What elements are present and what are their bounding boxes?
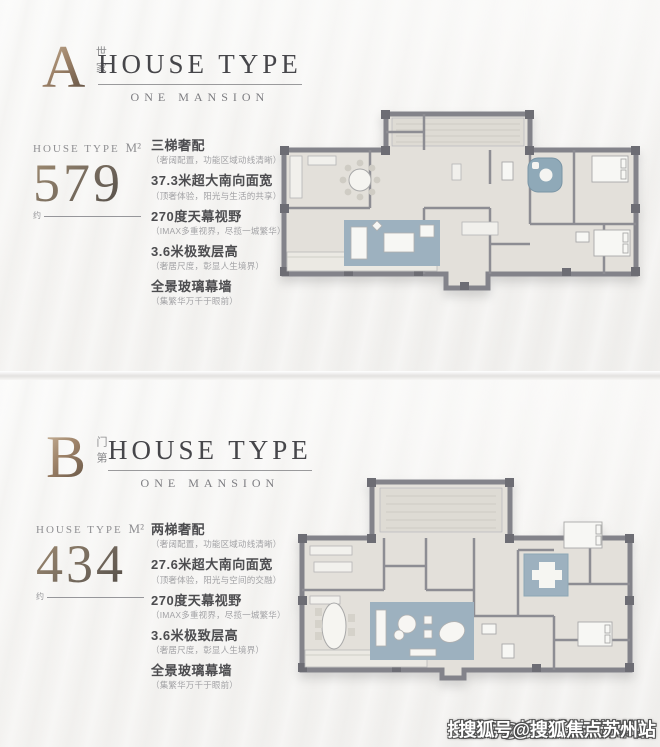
feature-desc: （集繁华万千于眼前）	[151, 296, 286, 307]
feature-item: 3.6米极致层高 （奢居尺度，彰显人生境界）	[151, 244, 286, 272]
area-value: 434	[36, 537, 144, 592]
feature-title: 3.6米极致层高	[151, 244, 286, 260]
heading-b: HOUSE TYPE ONE MANSION	[108, 435, 312, 491]
plan-a-living-rug	[344, 220, 440, 266]
feature-title: 37.3米超大南向面宽	[151, 173, 286, 189]
heading-subtitle: ONE MANSION	[98, 90, 302, 105]
area-unit: M²	[126, 140, 141, 156]
feature-desc: （集繁华万千于眼前）	[151, 680, 286, 691]
heading-title: HOUSE TYPE	[108, 435, 312, 466]
feature-list-b: 两梯奢配 （奢阔配置，功能区域动线清晰） 27.6米超大南向面宽 （顶奢体验，阳…	[151, 522, 286, 698]
feature-desc: （IMAX多重视界，尽揽一城繁华）	[151, 226, 286, 237]
feature-title: 270度天幕视野	[151, 209, 286, 225]
floor-plan-b	[292, 474, 640, 684]
watermark: 搜狐号@搜狐焦点苏州站 搜狐号@搜狐焦点苏州站	[416, 716, 656, 742]
feature-desc: （奢阔配置，功能区域动线清晰）	[151, 539, 286, 550]
feature-list-a: 三梯奢配 （奢阔配置，功能区域动线清晰） 37.3米超大南向面宽 （顶奢体验，阳…	[151, 138, 286, 314]
feature-title: 270度天幕视野	[151, 593, 286, 609]
floor-plan-a	[274, 104, 646, 300]
feature-desc: （奢居尺度，彰显人生境界）	[151, 261, 286, 272]
feature-desc: （奢居尺度，彰显人生境界）	[151, 645, 286, 656]
panel-house-type-b: B 门第 HOUSE TYPE ONE MANSION HOUSE TYPE M…	[0, 380, 660, 747]
area-underline	[47, 597, 144, 598]
feature-title: 27.6米超大南向面宽	[151, 557, 286, 573]
heading-rule	[108, 470, 312, 471]
logo-letter-b: B	[46, 430, 86, 485]
feature-item: 270度天幕视野 （IMAX多重视界，尽揽一城繁华）	[151, 593, 286, 621]
area-block-a: HOUSE TYPE M² 579 约	[33, 140, 141, 220]
heading-a: HOUSE TYPE ONE MANSION	[98, 49, 302, 105]
plan-a-dining-table	[340, 160, 381, 201]
feature-item: 27.6米超大南向面宽 （顶奢体验，阳光与空间的交融）	[151, 557, 286, 585]
area-underline	[44, 216, 141, 217]
area-value: 579	[33, 156, 141, 211]
area-foot: 约	[33, 212, 141, 220]
feature-item: 全景玻璃幕墙 （集繁华万千于眼前）	[151, 279, 286, 307]
watermark-text: 搜狐号@搜狐焦点苏州站	[458, 716, 656, 742]
feature-desc: （顶奢体验，阳光与生活的共享）	[151, 191, 286, 202]
panel-divider	[0, 371, 660, 380]
plan-b-bathroom	[524, 554, 568, 596]
feature-title: 两梯奢配	[151, 522, 286, 538]
feature-item: 3.6米极致层高 （奢居尺度，彰显人生境界）	[151, 628, 286, 656]
logo-letter-b-chinese: 门第	[93, 436, 109, 468]
area-unit: M²	[129, 521, 144, 537]
panel-house-type-a: A 世家 HOUSE TYPE ONE MANSION HOUSE TYPE M…	[0, 0, 660, 372]
feature-title: 3.6米极致层高	[151, 628, 286, 644]
plan-b-terrace-hatch	[380, 488, 502, 532]
area-approx-label: 约	[33, 212, 41, 220]
feature-item: 两梯奢配 （奢阔配置，功能区域动线清晰）	[151, 522, 286, 550]
feature-item: 全景玻璃幕墙 （集繁华万千于眼前）	[151, 663, 286, 691]
feature-desc: （奢阔配置，功能区域动线清晰）	[151, 155, 286, 166]
logo-b: B 门第	[46, 430, 109, 485]
feature-desc: （IMAX多重视界，尽揽一城繁华）	[151, 610, 286, 621]
logo-letter-a: A	[42, 40, 85, 95]
feature-title: 三梯奢配	[151, 138, 286, 154]
plan-b-living-rug	[370, 602, 474, 660]
plan-a-bathtub	[528, 158, 562, 192]
feature-title: 全景玻璃幕墙	[151, 279, 286, 295]
feature-desc: （顶奢体验，阳光与空间的交融）	[151, 575, 286, 586]
area-foot: 约	[36, 593, 144, 601]
feature-title: 全景玻璃幕墙	[151, 663, 286, 679]
feature-item: 37.3米超大南向面宽 （顶奢体验，阳光与生活的共享）	[151, 173, 286, 201]
feature-item: 三梯奢配 （奢阔配置，功能区域动线清晰）	[151, 138, 286, 166]
area-approx-label: 约	[36, 593, 44, 601]
heading-title: HOUSE TYPE	[98, 49, 302, 80]
heading-subtitle: ONE MANSION	[108, 476, 312, 491]
heading-rule	[98, 84, 302, 85]
area-block-b: HOUSE TYPE M² 434 约	[36, 521, 144, 601]
feature-item: 270度天幕视野 （IMAX多重视界，尽揽一城繁华）	[151, 209, 286, 237]
